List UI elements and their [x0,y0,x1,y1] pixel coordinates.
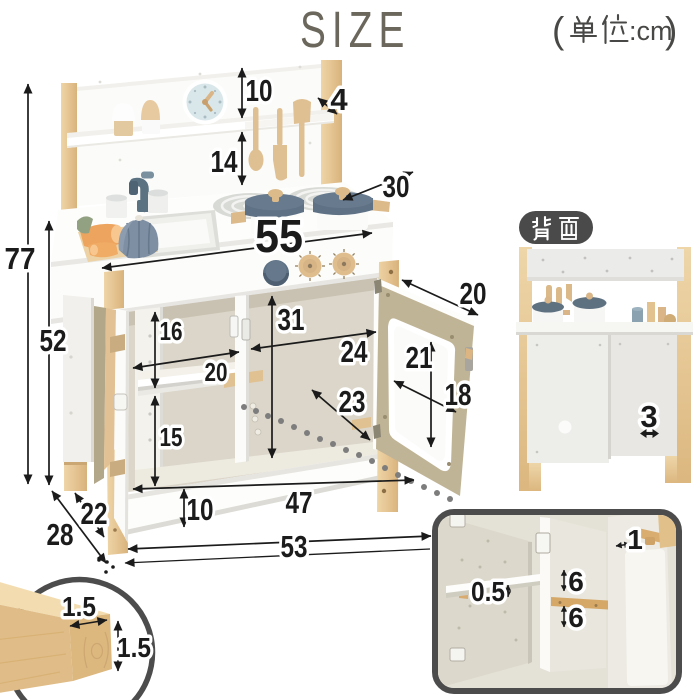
svg-text:53: 53 [281,529,308,564]
svg-text:0.5: 0.5 [471,576,505,607]
svg-text:1.5: 1.5 [62,591,96,622]
svg-text:10: 10 [246,73,273,108]
svg-text:52: 52 [40,323,67,358]
svg-text:14: 14 [211,144,239,179]
svg-text:28: 28 [47,517,74,552]
svg-text:24: 24 [341,334,369,369]
svg-text:3: 3 [640,399,657,434]
svg-text:SIZE: SIZE [300,1,410,58]
svg-text:21: 21 [406,340,433,375]
svg-text:18: 18 [445,377,472,412]
svg-text:10: 10 [187,492,214,527]
svg-text:77: 77 [5,241,36,276]
svg-text:23: 23 [339,384,366,419]
svg-text:15: 15 [160,422,183,452]
svg-text:22: 22 [81,496,108,531]
svg-text:16: 16 [160,316,183,346]
svg-text:1.5: 1.5 [117,632,151,663]
svg-text:6: 6 [568,566,584,597]
svg-text:6: 6 [568,602,584,633]
svg-text:1: 1 [627,524,643,555]
svg-text:20: 20 [460,276,487,311]
svg-text:): ) [665,10,677,51]
svg-text:30: 30 [383,169,410,204]
svg-text:47: 47 [286,485,313,520]
svg-text:31: 31 [278,302,305,337]
svg-text:55: 55 [255,210,303,262]
svg-text:20: 20 [205,357,228,387]
svg-text:(: ( [552,10,565,51]
svg-text:4: 4 [330,82,348,117]
